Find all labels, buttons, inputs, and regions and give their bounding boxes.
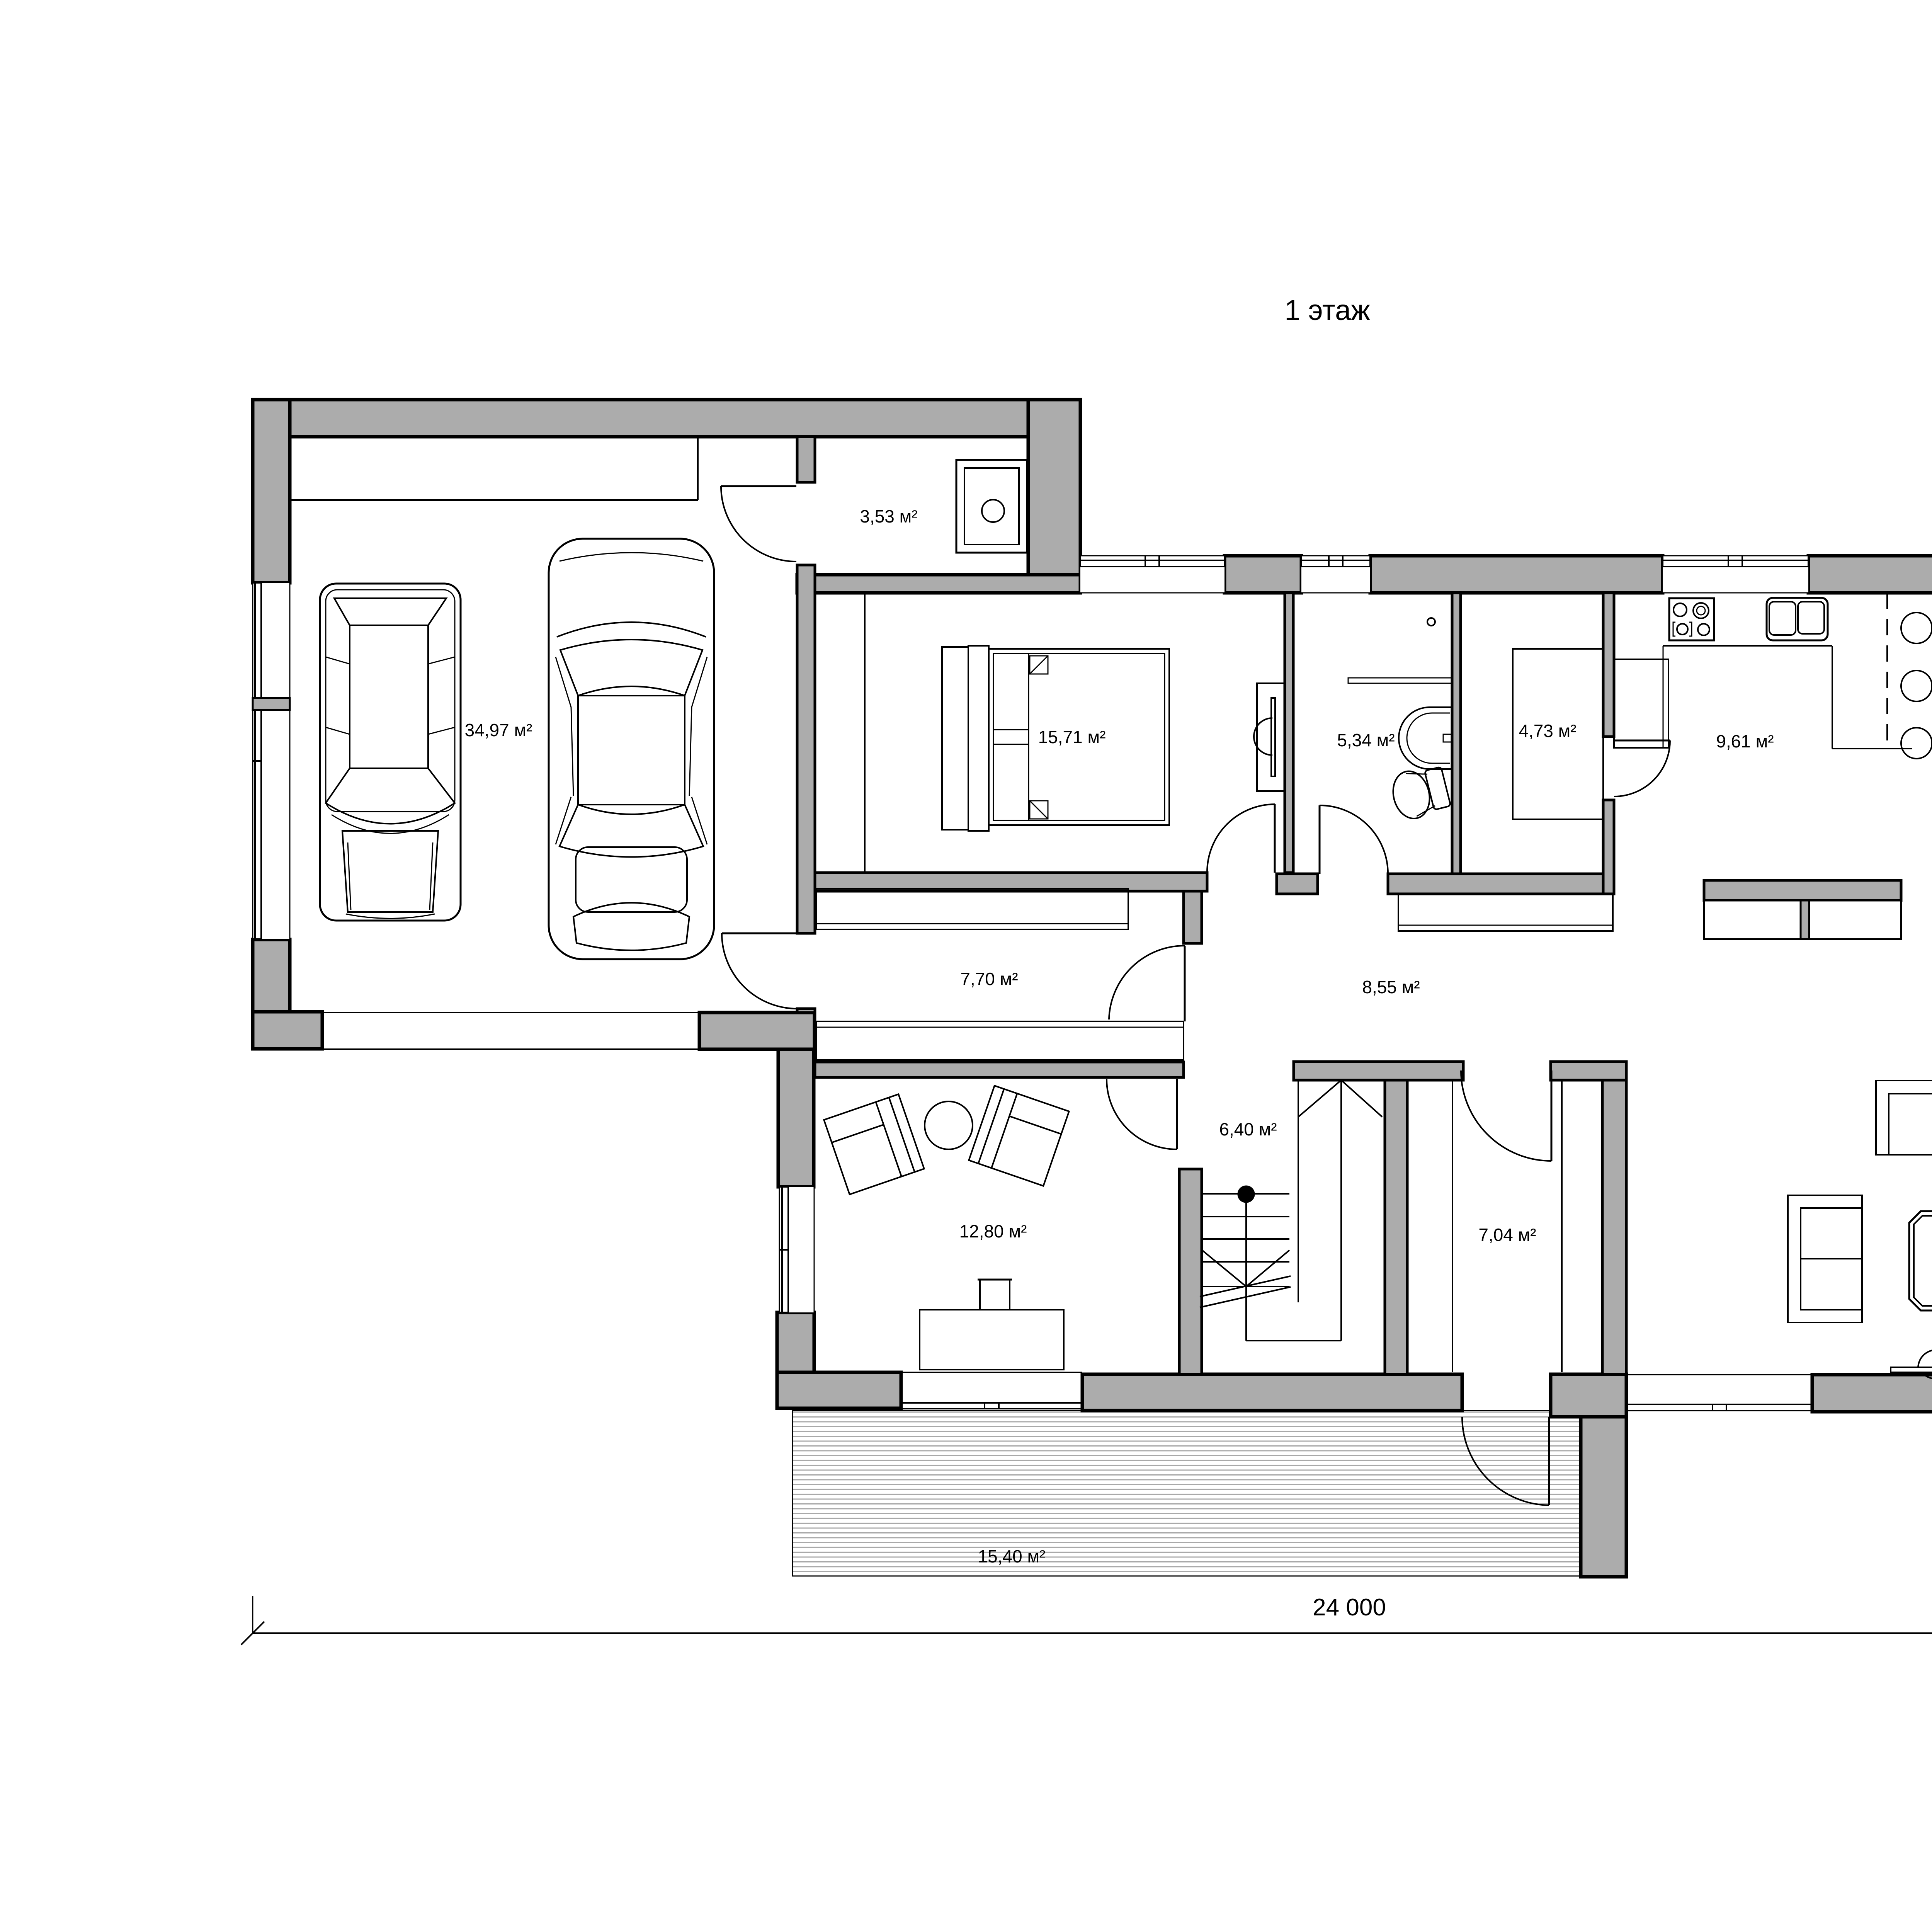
svg-text:8,55 м²: 8,55 м² bbox=[1362, 977, 1420, 997]
svg-text:24 000: 24 000 bbox=[1313, 1594, 1386, 1621]
svg-text:7,70 м²: 7,70 м² bbox=[960, 969, 1018, 989]
svg-text:6,40 м²: 6,40 м² bbox=[1219, 1119, 1277, 1139]
svg-text:12,80 м²: 12,80 м² bbox=[959, 1221, 1027, 1241]
svg-text:4,73 м²: 4,73 м² bbox=[1519, 721, 1576, 741]
svg-text:3,53 м²: 3,53 м² bbox=[860, 506, 917, 526]
svg-text:5,34 м²: 5,34 м² bbox=[1337, 730, 1395, 750]
svg-text:9,61 м²: 9,61 м² bbox=[1716, 731, 1774, 751]
svg-text:15,71 м²: 15,71 м² bbox=[1038, 727, 1106, 747]
svg-text:1 этаж: 1 этаж bbox=[1284, 294, 1370, 326]
svg-text:15,40 м²: 15,40 м² bbox=[978, 1546, 1046, 1566]
svg-text:34,97 м²: 34,97 м² bbox=[465, 720, 532, 740]
svg-text:7,04 м²: 7,04 м² bbox=[1478, 1225, 1536, 1245]
